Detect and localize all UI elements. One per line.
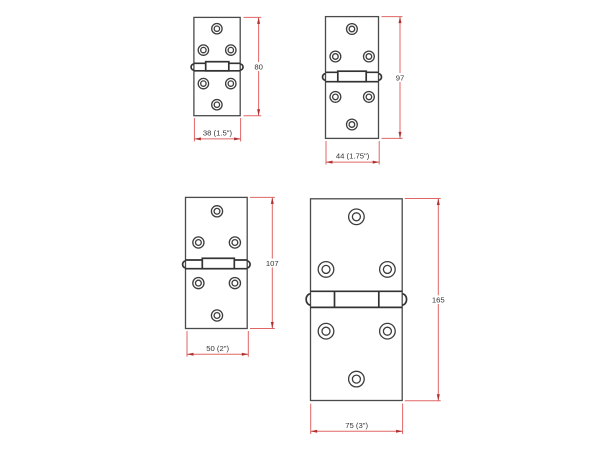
svg-text:38 (1.5"): 38 (1.5") bbox=[203, 129, 233, 138]
svg-text:75 (3"): 75 (3") bbox=[345, 421, 368, 430]
svg-text:97: 97 bbox=[396, 74, 405, 83]
svg-text:80: 80 bbox=[254, 63, 263, 72]
svg-text:107: 107 bbox=[266, 259, 279, 268]
svg-text:44 (1.75"): 44 (1.75") bbox=[336, 152, 370, 161]
svg-text:165: 165 bbox=[432, 296, 445, 305]
svg-text:50 (2"): 50 (2") bbox=[206, 344, 229, 353]
